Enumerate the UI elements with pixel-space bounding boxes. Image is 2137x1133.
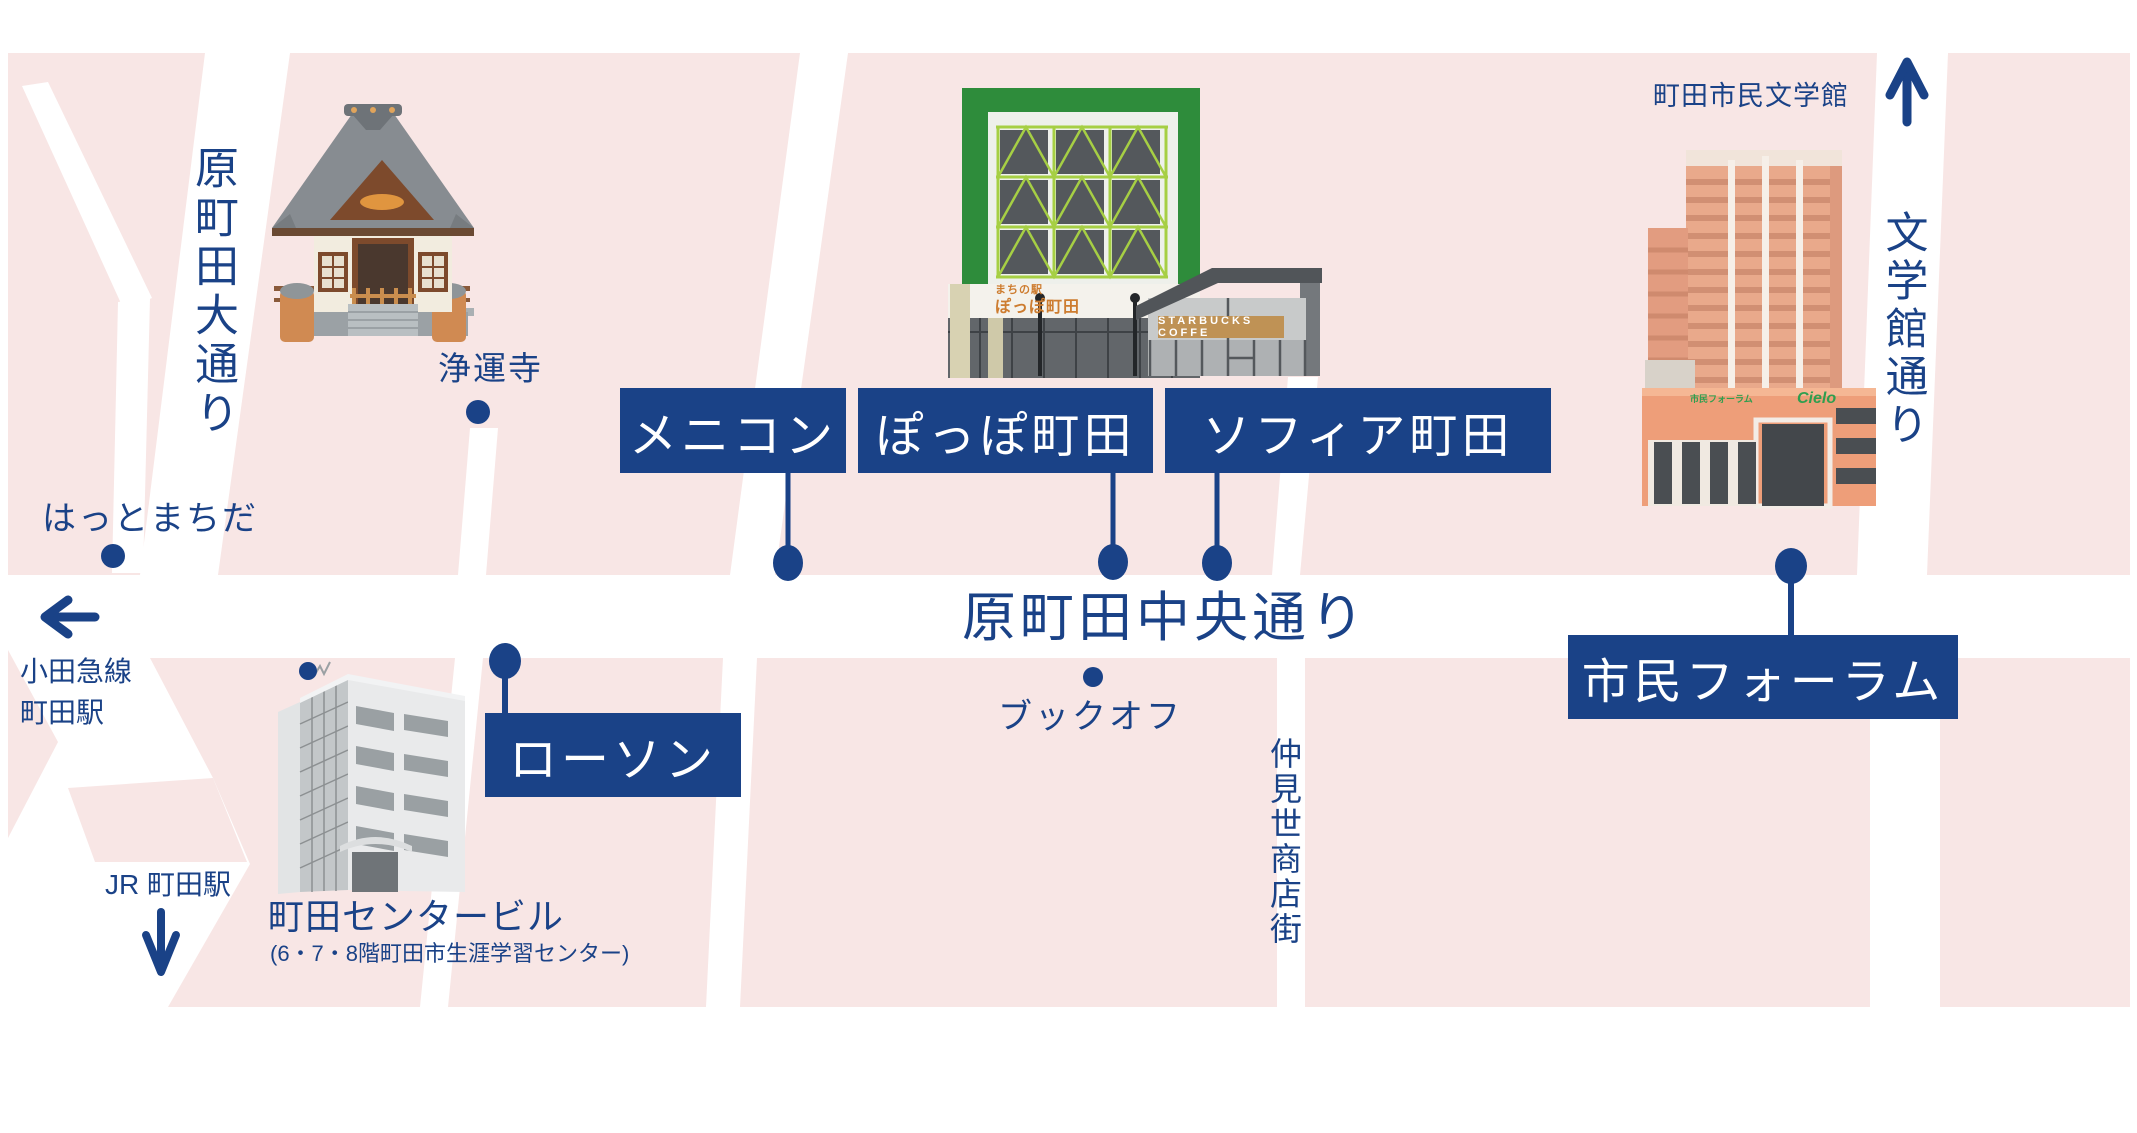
- street-name-nakamise-shotengai: 仲見世商店街: [1268, 737, 1300, 947]
- label-box-poppo-machida: ぽっぽ町田: [858, 388, 1153, 473]
- machida-center-building-marker-dot: [299, 662, 317, 680]
- label-box-lawson: ローソン: [485, 713, 741, 797]
- place-label-machida-center-building: 町田センタービル: [268, 895, 564, 938]
- poppo-station-sign-line1: まちの駅: [995, 284, 1080, 298]
- place-label-hatto-machida: はっとまちだ: [42, 499, 258, 540]
- forum-tower-right-logo: Cielo: [1797, 390, 1836, 408]
- machida-center-building-illustration: [278, 662, 465, 894]
- place-label-bookoff: ブックオフ: [998, 697, 1183, 738]
- poppo-station-sign-line2: ぽっぽ町田: [995, 298, 1080, 318]
- jr-down-arrow-icon: [146, 912, 176, 972]
- place-label-jounji: 浄運寺: [438, 349, 543, 389]
- poppo-station-sign: まちの駅 ぽっぽ町田: [995, 284, 1080, 318]
- menicon-marker-dot: [773, 545, 803, 581]
- poppo-machida-marker-dot: [1098, 544, 1128, 580]
- street-name-haramachida-chuo-dori: 原町田中央通り: [962, 586, 1368, 651]
- station-label-odakyu-line1: 小田急線: [20, 652, 132, 693]
- station-label-jr: JR 町田駅: [105, 868, 231, 902]
- street-name-bungakukan-dori: 文学館通り: [1881, 210, 1924, 450]
- forum-tower-left-logo: 市民フォーラム: [1690, 392, 1753, 405]
- starbucks-sign: STARBUCKS COFFE: [1158, 316, 1284, 338]
- bungakukan-up-arrow-icon: [1890, 62, 1924, 122]
- street-name-haramachida-odori: 原町田大通り: [190, 145, 234, 439]
- station-label-odakyu: 小田急線 町田駅: [20, 652, 132, 733]
- shimin-forum-marker-dot: [1775, 548, 1807, 584]
- station-label-odakyu-line2: 町田駅: [20, 693, 132, 734]
- lawson-marker-dot: [489, 643, 521, 679]
- label-box-shimin-forum: 市民フォーラム: [1568, 635, 1958, 719]
- label-box-menicon: メニコン: [620, 388, 846, 473]
- hatto-machida-marker-dot: [101, 544, 125, 568]
- place-label-machida-center-building-note: (6・7・8階町田市生涯学習センター): [270, 941, 629, 967]
- jounji-marker-dot: [466, 400, 490, 424]
- odakyu-left-arrow-icon: [45, 600, 95, 634]
- illustrated-area-map: 原町田大通り 文学館通り 仲見世商店街 原町田中央通り 浄運寺 はっとまちだ ブ…: [0, 0, 2137, 1133]
- label-box-sophia-machida: ソフィア町田: [1165, 388, 1551, 473]
- sophia-machida-marker-dot: [1202, 545, 1232, 581]
- place-label-machida-shimin-bungakukan: 町田市民文学館: [1653, 80, 1849, 112]
- bookoff-marker-dot: [1083, 667, 1103, 687]
